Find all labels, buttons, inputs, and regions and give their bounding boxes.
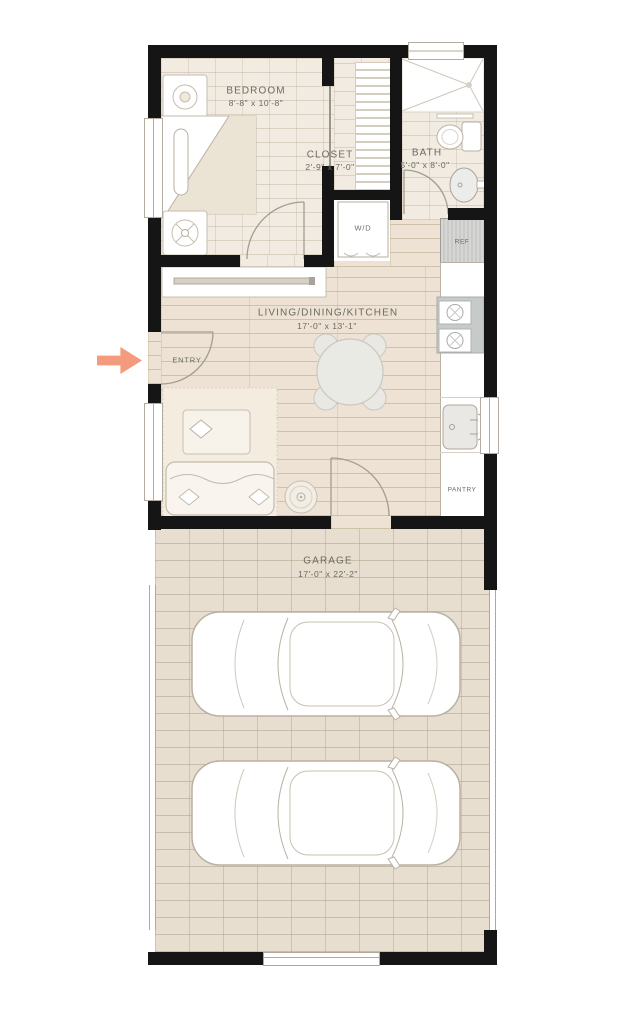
wall-segment [391,516,497,529]
wall-segment [148,216,161,332]
refrigerator-label: REF [455,239,470,246]
living-window [144,403,163,501]
pantry-label: PANTRY [448,487,477,494]
wall-segment [148,516,331,529]
garage-side-wall [149,585,156,930]
wall-segment [448,208,497,220]
wall-segment [322,58,334,86]
bath-dims: 5'-0" x 8'-0" [400,160,449,170]
shower [402,58,484,118]
car-2 [192,757,460,869]
car-1 [192,608,460,720]
side-table [285,481,317,513]
nightstand-top [163,75,207,119]
bedroom-window [144,118,163,218]
washer-dryer-label: W/D [355,224,372,233]
bedroom-label: BEDROOM [226,86,285,97]
kitchen-window [480,397,499,454]
floor-plan: BEDROOM 8'-8" x 10'-8" CLOSET 2'-9" x 7'… [0,0,644,1024]
wall-segment [390,58,402,220]
closet-label: CLOSET [307,150,354,161]
bath-window [408,42,464,60]
sofa [166,462,274,515]
wall-segment [322,166,334,267]
closet-dims: 2'-9" x 7'-0" [305,162,354,172]
wall-segment [148,255,240,267]
wall-segment [334,190,390,200]
bed [161,116,256,214]
coffee-table [183,410,250,454]
dining-set [314,334,386,410]
coat-closet [162,267,326,297]
wall-segment [148,58,161,118]
garage-side-wall [489,590,496,930]
wall-segment [148,45,408,58]
kitchen-sink [443,405,482,449]
bath-door-swing [404,170,448,214]
bedroom-dims: 8'-8" x 10'-8" [229,98,284,108]
garage-door-swing [331,458,389,516]
toilet [437,122,481,151]
stove [437,297,484,353]
living-label: LIVING/DINING/KITCHEN [258,308,398,319]
nightstand-bottom [163,211,207,255]
wall-segment [484,45,497,397]
wall-segment [378,952,497,965]
wall-segment [148,952,263,965]
living-dims: 17'-0" x 13'-1" [297,321,357,331]
garage-dims: 17'-0" x 22'-2" [298,569,358,579]
bath-label: BATH [412,148,442,159]
wall-segment [148,384,161,405]
entry-label: ENTRY [172,356,201,365]
garage-overhead-door [263,952,380,966]
garage-label: GARAGE [303,556,352,567]
bath-sink [450,168,485,202]
